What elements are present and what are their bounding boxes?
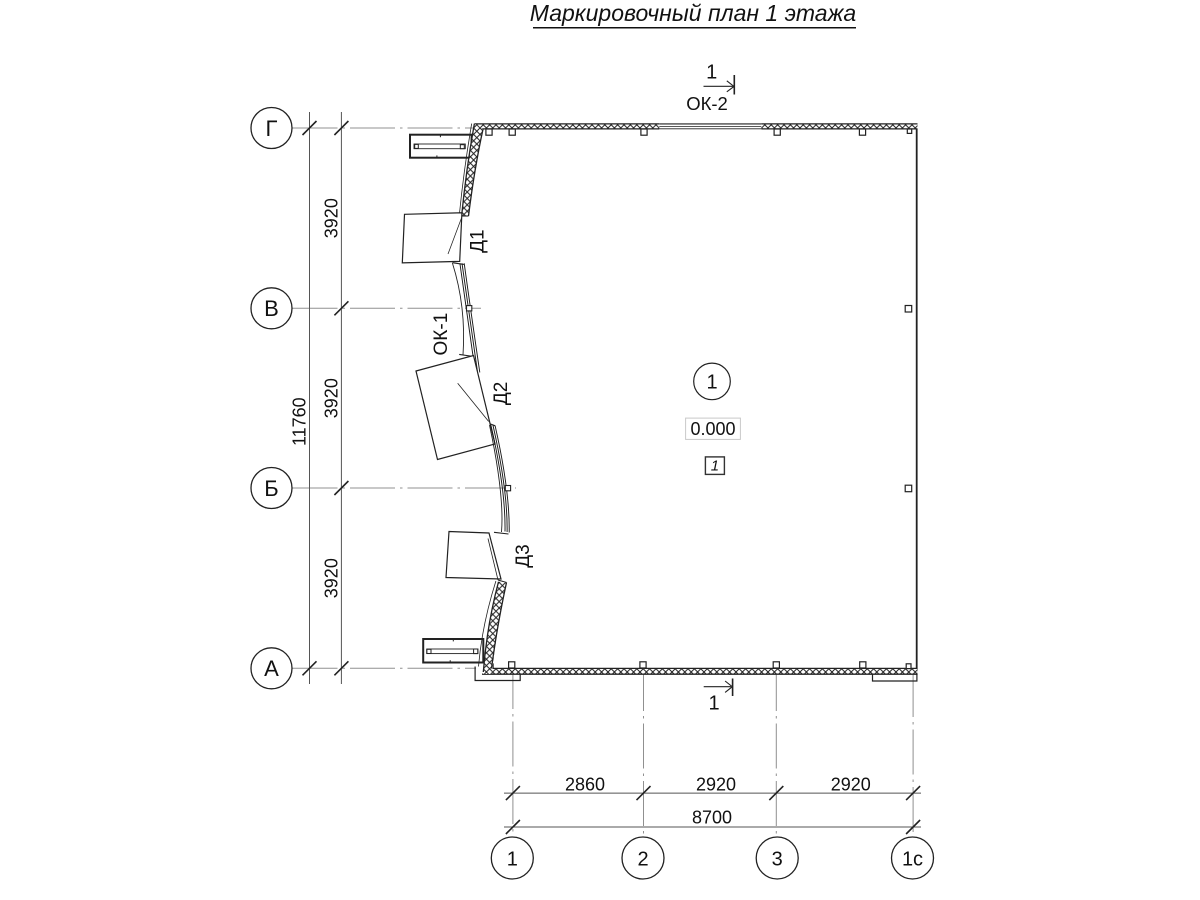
svg-text:1: 1 bbox=[507, 848, 518, 870]
svg-text:ОК-1: ОК-1 bbox=[431, 313, 452, 356]
svg-text:2920: 2920 bbox=[696, 775, 736, 795]
svg-text:3920: 3920 bbox=[322, 558, 342, 598]
svg-text:1: 1 bbox=[708, 693, 719, 715]
svg-text:А: А bbox=[264, 656, 279, 681]
svg-text:3: 3 bbox=[772, 848, 783, 870]
svg-text:Д1: Д1 bbox=[468, 229, 489, 252]
svg-text:3920: 3920 bbox=[322, 378, 342, 418]
svg-text:Д3: Д3 bbox=[513, 544, 534, 567]
svg-text:2860: 2860 bbox=[565, 775, 605, 795]
svg-text:Г: Г bbox=[266, 116, 278, 141]
svg-text:Маркировочный план 1 этажа: Маркировочный план 1 этажа bbox=[530, 0, 856, 26]
svg-text:11760: 11760 bbox=[290, 397, 310, 446]
svg-text:ОК-2: ОК-2 bbox=[686, 93, 728, 114]
svg-text:3920: 3920 bbox=[322, 198, 342, 238]
svg-text:1с: 1с bbox=[902, 848, 923, 870]
svg-text:1: 1 bbox=[711, 458, 719, 475]
svg-text:Д2: Д2 bbox=[491, 382, 512, 405]
svg-text:2: 2 bbox=[637, 848, 648, 870]
svg-text:2920: 2920 bbox=[831, 775, 871, 795]
svg-text:1: 1 bbox=[706, 372, 717, 394]
svg-text:8700: 8700 bbox=[692, 808, 732, 828]
svg-text:В: В bbox=[264, 296, 279, 321]
svg-text:Б: Б bbox=[264, 476, 278, 501]
svg-text:1: 1 bbox=[706, 62, 717, 84]
svg-text:0.000: 0.000 bbox=[690, 419, 735, 439]
